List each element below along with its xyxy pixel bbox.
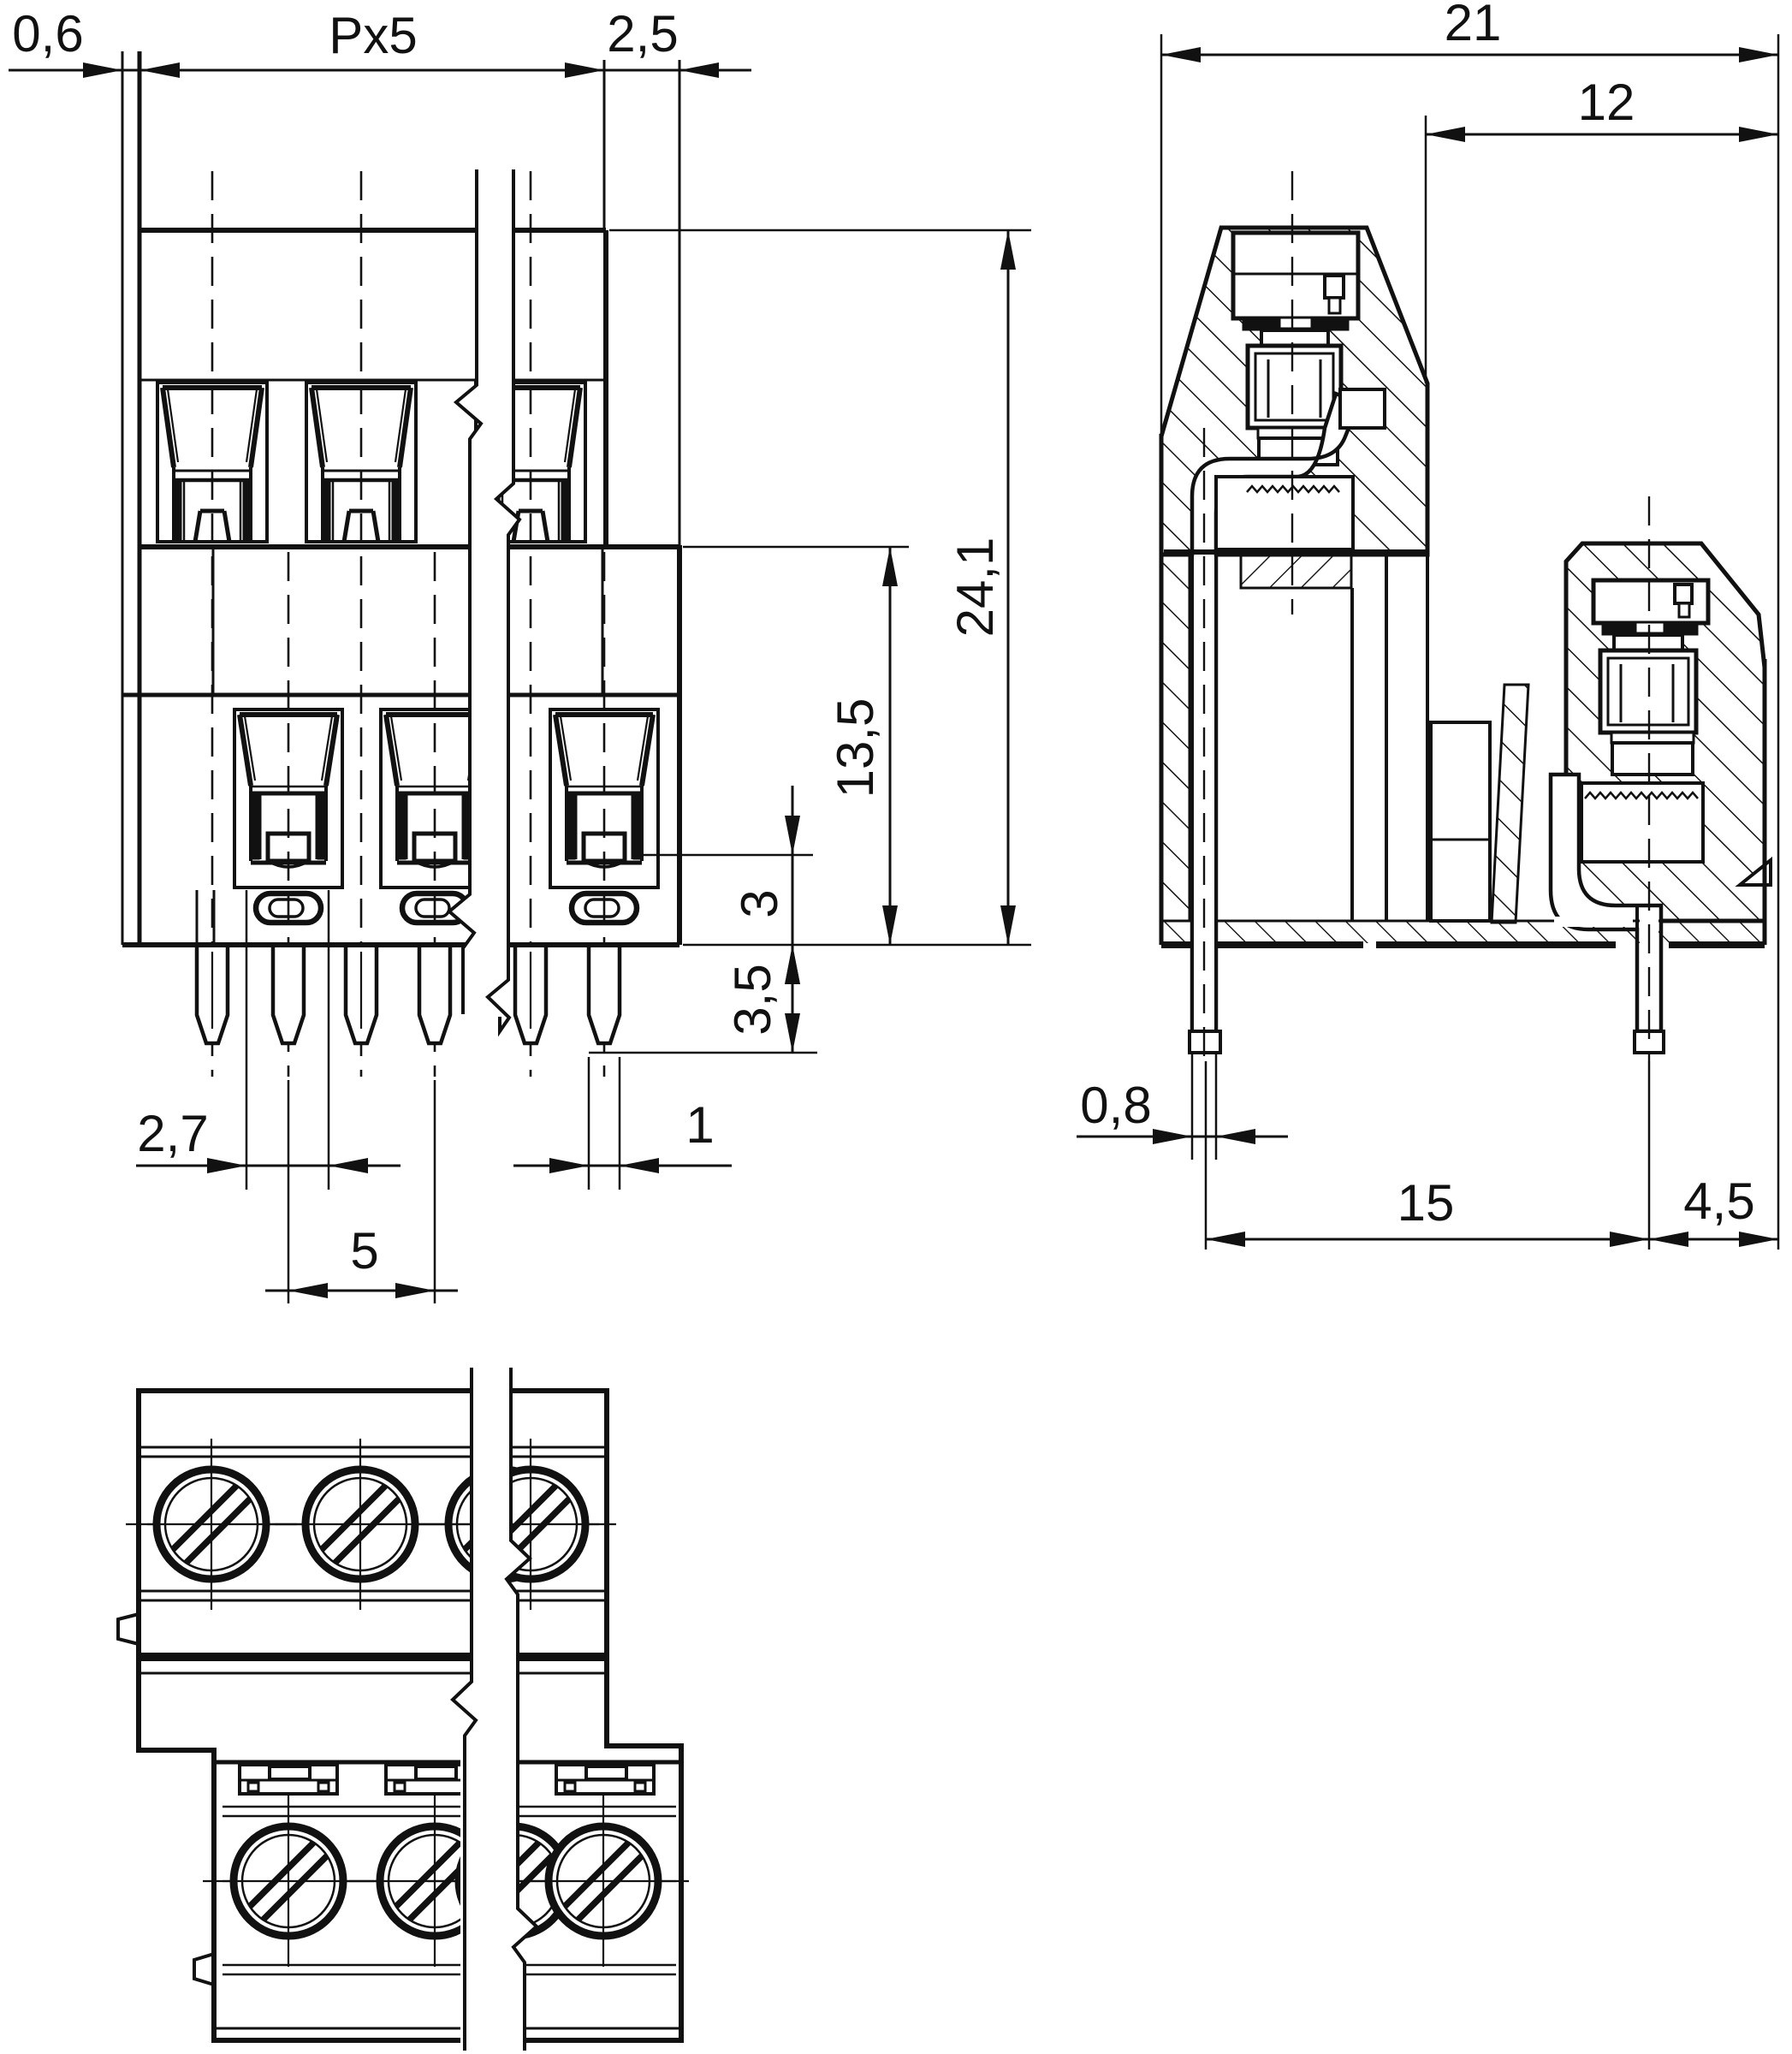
svg-text:1: 1 [685, 1096, 714, 1154]
svg-text:5: 5 [350, 1222, 378, 1279]
svg-text:3: 3 [731, 889, 788, 917]
svg-text:2,5: 2,5 [607, 5, 678, 62]
svg-text:3,5: 3,5 [724, 964, 781, 1035]
svg-text:15: 15 [1397, 1174, 1455, 1232]
svg-text:13,5: 13,5 [827, 698, 884, 798]
svg-text:Px5: Px5 [329, 7, 417, 64]
svg-text:12: 12 [1578, 74, 1635, 131]
svg-text:21: 21 [1445, 0, 1502, 51]
svg-text:24,1: 24,1 [946, 537, 1004, 638]
svg-text:0,8: 0,8 [1080, 1077, 1151, 1134]
svg-text:2,7: 2,7 [137, 1105, 208, 1162]
svg-text:0,6: 0,6 [12, 5, 83, 62]
svg-text:4,5: 4,5 [1683, 1172, 1754, 1230]
